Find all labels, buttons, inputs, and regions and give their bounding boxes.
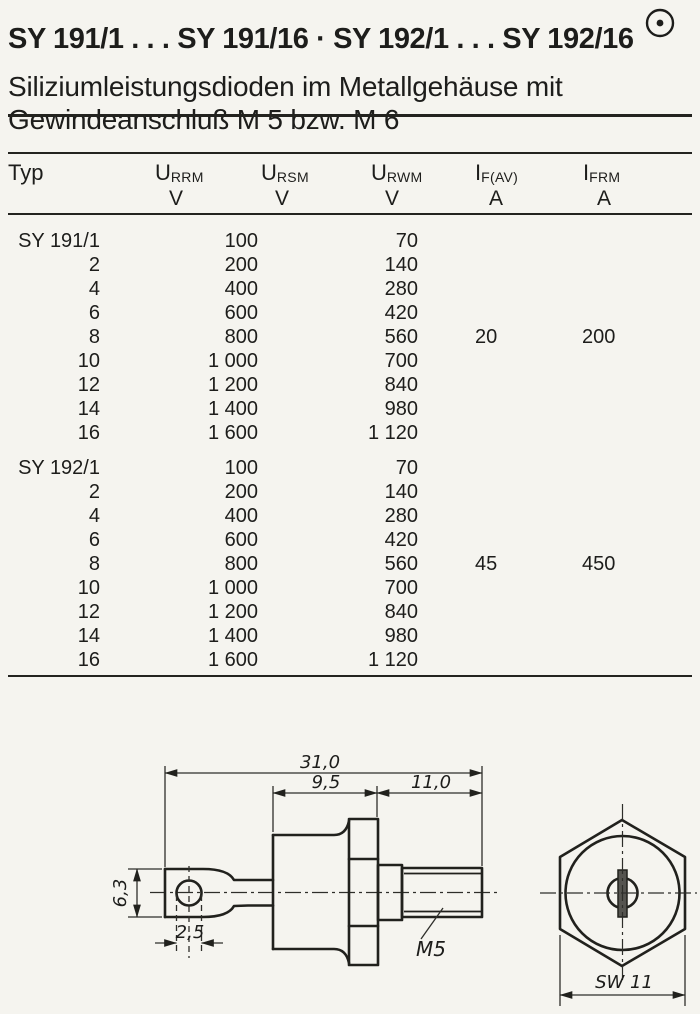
table-row: 161 6001 120 (8, 648, 692, 672)
col-header-ifrm: IFRM A (583, 160, 620, 211)
table-row: 121 200840 (8, 600, 692, 624)
cell-typ: 6 (8, 301, 100, 325)
cell-ifrm-sy191: 200 (582, 325, 615, 349)
cell-urwm: 700 (258, 576, 418, 600)
dim-thread-length: 11,0 (411, 772, 451, 793)
cell-urwm: 980 (258, 624, 418, 648)
table-row: 101 000700 (8, 576, 692, 600)
table-row: 141 400980 (8, 624, 692, 648)
cell-urwm: 140 (258, 480, 418, 504)
cell-urrm: 600 (100, 528, 258, 552)
cell-urrm: 800 (100, 325, 258, 349)
cell-urwm: 420 (258, 528, 418, 552)
cell-urwm: 280 (258, 277, 418, 301)
cell-typ: 16 (8, 421, 100, 445)
wrench-size-label: SW 11 (595, 972, 653, 993)
cell-urwm: 560 (258, 552, 418, 576)
col-header-typ: Typ (8, 160, 43, 186)
cell-typ: 2 (8, 253, 100, 277)
cell-urwm: 700 (258, 349, 418, 373)
table-block-sy192: SY 192/110070 2200140 4400280 6600420 88… (8, 456, 692, 672)
table-row: 141 400980 (8, 397, 692, 421)
col-header-ifav: IF(AV) A (475, 160, 518, 211)
cell-typ: 2 (8, 480, 100, 504)
cell-ifav-sy191: 20 (475, 325, 497, 349)
cell-typ: 16 (8, 648, 100, 672)
table-row: 6600420 (8, 528, 692, 552)
table-row: 6600420 (8, 301, 692, 325)
cell-urwm: 280 (258, 504, 418, 528)
cell-typ: 12 (8, 373, 100, 397)
cell-urwm: 980 (258, 397, 418, 421)
side-view: 31,0 9,5 11,0 6,3 (110, 752, 497, 965)
cell-urwm: 140 (258, 253, 418, 277)
dim-case-length: 9,5 (312, 772, 341, 793)
cell-urrm: 200 (100, 480, 258, 504)
cell-urrm: 100 (100, 229, 258, 253)
end-view: SW 11 (540, 804, 697, 1006)
cell-urrm: 200 (100, 253, 258, 277)
cell-urrm: 600 (100, 301, 258, 325)
table-row: 121 200840 (8, 373, 692, 397)
outline-drawing: 31,0 9,5 11,0 6,3 (0, 740, 700, 1014)
cell-urrm: 100 (100, 456, 258, 480)
cell-typ: SY 192/1 (8, 456, 100, 480)
dim-hole-diameter: 2,5 (176, 922, 205, 943)
cell-urrm: 800 (100, 552, 258, 576)
cell-urwm: 1 120 (258, 648, 418, 672)
datasheet-page: SY 191/1 . . . SY 191/16 · SY 192/1 . . … (0, 0, 700, 1014)
page-title: SY 191/1 . . . SY 191/16 · SY 192/1 . . … (8, 23, 638, 56)
cell-urwm: 420 (258, 301, 418, 325)
cell-urrm: 1 000 (100, 349, 258, 373)
cell-urwm: 840 (258, 373, 418, 397)
table-row: 2200140 (8, 480, 692, 504)
cell-ifav-sy192: 45 (475, 552, 497, 576)
table-row: 161 6001 120 (8, 421, 692, 445)
cell-urrm: 1 200 (100, 600, 258, 624)
cell-typ: 14 (8, 397, 100, 421)
cell-urrm: 1 400 (100, 397, 258, 421)
cell-typ: SY 191/1 (8, 229, 100, 253)
table-header: Typ URRM V URSM V URWM V IF(AV) A IFRM A (8, 160, 692, 212)
thread-size-label: M5 (416, 937, 446, 961)
title-divider (8, 114, 692, 117)
table-top-rule (8, 152, 692, 154)
cell-urrm: 1 600 (100, 648, 258, 672)
cell-typ: 6 (8, 528, 100, 552)
cell-typ: 8 (8, 552, 100, 576)
circled-dot-icon (643, 6, 677, 40)
cell-urwm: 840 (258, 600, 418, 624)
cell-typ: 12 (8, 600, 100, 624)
cell-urrm: 1 400 (100, 624, 258, 648)
table-row: 101 000700 (8, 349, 692, 373)
subtitle-line-1: Siliziumleistungsdioden im Metallgehäuse… (8, 71, 563, 102)
dim-lug-height: 6,3 (110, 879, 131, 908)
subtitle-line-2: Gewindeanschluß M 5 bzw. M 6 (8, 104, 399, 135)
cell-urrm: 400 (100, 277, 258, 301)
cell-urrm: 1 000 (100, 576, 258, 600)
col-header-urrm: URRM V (155, 160, 204, 211)
table-row: 2200140 (8, 253, 692, 277)
cell-urwm: 1 120 (258, 421, 418, 445)
col-header-urwm: URWM V (371, 160, 423, 211)
cell-urwm: 70 (258, 456, 418, 480)
cell-typ: 14 (8, 624, 100, 648)
page-subtitle: Siliziumleistungsdioden im Metallgehäuse… (8, 70, 563, 136)
cell-ifrm-sy192: 450 (582, 552, 615, 576)
cell-typ: 10 (8, 576, 100, 600)
cell-urwm: 70 (258, 229, 418, 253)
cell-typ: 4 (8, 504, 100, 528)
table-bottom-rule (8, 675, 692, 677)
cell-urrm: 400 (100, 504, 258, 528)
table-header-rule (8, 213, 692, 215)
table-block-sy191: SY 191/110070 2200140 4400280 6600420 88… (8, 229, 692, 445)
dim-overall-length: 31,0 (300, 752, 340, 773)
table-row: 4400280 (8, 504, 692, 528)
table-row: SY 192/110070 (8, 456, 692, 480)
cell-typ: 4 (8, 277, 100, 301)
cell-urrm: 1 200 (100, 373, 258, 397)
cell-typ: 10 (8, 349, 100, 373)
cell-typ: 8 (8, 325, 100, 349)
table-row: 4400280 (8, 277, 692, 301)
table-row: SY 191/110070 (8, 229, 692, 253)
cell-urwm: 560 (258, 325, 418, 349)
cell-urrm: 1 600 (100, 421, 258, 445)
col-header-ursm: URSM V (261, 160, 309, 211)
